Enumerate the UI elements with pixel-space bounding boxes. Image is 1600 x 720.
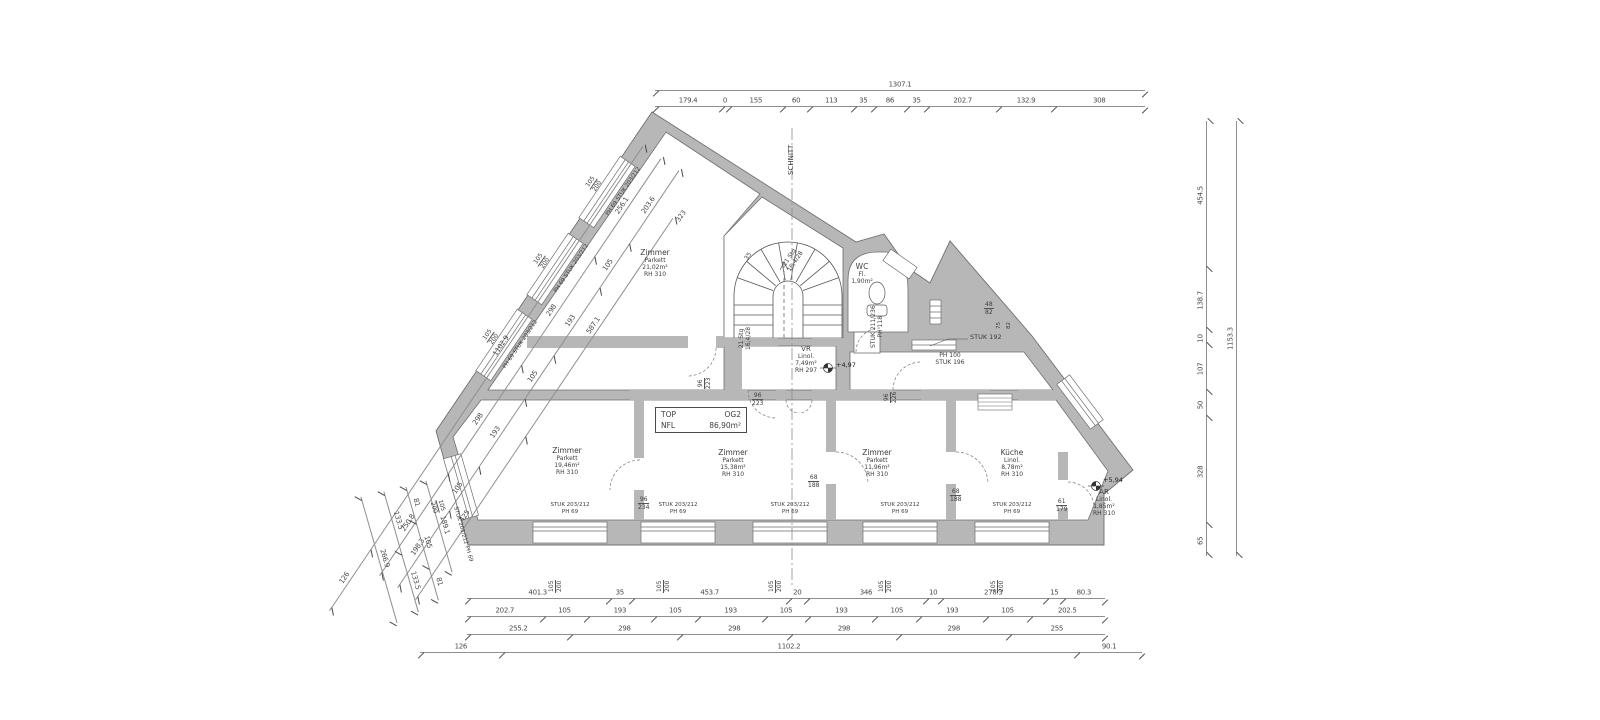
room-label-ar: ARLinol. 1,85m²RH 310	[1078, 488, 1130, 517]
floorplan-canvas: 1307.1 179.4015560113358635202.7132.9308…	[0, 0, 1600, 720]
room-label-zimmer-top: ZimmerParkett 21,02m²RH 310	[615, 248, 695, 278]
window-size-tag: 105200	[768, 580, 783, 593]
dim-chain-top-row: 179.4015560113358635202.7132.9308	[655, 96, 1145, 107]
room-label-vr: VRLinol. 7,49m²RH 297	[766, 345, 846, 374]
window-size-tag: 105200	[990, 580, 1005, 593]
dim-chain-bottom-3: 255.2298298298298255	[467, 624, 1105, 635]
window-size-tag: 105200	[878, 580, 893, 593]
dim-chain-right-inner: 653285010710138.7454.5	[1196, 121, 1207, 556]
window-tag: STUK 203/212PH 69	[760, 502, 820, 516]
stuk-192-label: STUK 192	[970, 334, 1002, 341]
ph100-stuk196-label: PH 100STUK 196	[928, 352, 972, 366]
dim-chain-bottom-4: 1261102.290.1	[420, 642, 1142, 653]
dim-chain-bottom-2: 202.7105193105193105193105193105202.5	[467, 606, 1105, 617]
apartment-title-box: TOPOG2 NFL86,90m²	[655, 407, 747, 433]
section-label: SCHNITT	[788, 145, 795, 175]
window-tag: STUK 203/212PH 69	[870, 502, 930, 516]
room-label-zimmer-mid: ZimmerParkett 15,38m²RH 310	[693, 448, 773, 478]
dim-chain-top-total: 1307.1	[655, 80, 1145, 91]
room-label-wc: WCFl. 1,90m²	[822, 262, 902, 285]
window-tag: STUK 203/212PH 69	[540, 502, 600, 516]
door-tag: 96234	[638, 496, 649, 511]
nfl-label: NFL	[661, 420, 675, 431]
door-tag: 96223	[752, 392, 763, 407]
door-tag: 61179	[1056, 498, 1067, 513]
room-label-kueche: KücheLinol. 8,78m²RH 310	[972, 448, 1052, 478]
door-tag: 96226	[883, 392, 898, 403]
window-tag: STUK 203/212PH 69	[982, 502, 1042, 516]
stair-label-lower: 21 Stg16,4/28	[738, 327, 752, 350]
door-tag: 68188	[808, 474, 819, 489]
elevation-value-vr: +4,97	[836, 361, 856, 369]
kitchen-fixture	[978, 394, 1012, 410]
wc-window-tag: STUK 211/236PH 118	[870, 305, 884, 348]
door-tag: 96223	[697, 378, 712, 389]
window-size-tag: 105200	[656, 580, 671, 593]
apartment-label: TOP	[661, 409, 676, 420]
niche-dim-75: 75	[996, 322, 1003, 329]
window-tag: STUK 203/212PH 69	[648, 502, 708, 516]
room-label-zimmer-left: ZimmerParkett 19,46m²RH 310	[527, 446, 607, 476]
elevation-value-ar: +5,94	[1103, 476, 1123, 484]
door-tag: 68188	[950, 488, 961, 503]
window-size-tag: 105200	[548, 580, 563, 593]
niche-dim-82: 82	[1006, 322, 1013, 329]
dim-chain-right-outer: 1153.3	[1226, 121, 1237, 556]
niche-dim: 4882	[984, 301, 994, 316]
room-label-zimmer-right: ZimmerParkett 11,96m²RH 310	[837, 448, 917, 478]
